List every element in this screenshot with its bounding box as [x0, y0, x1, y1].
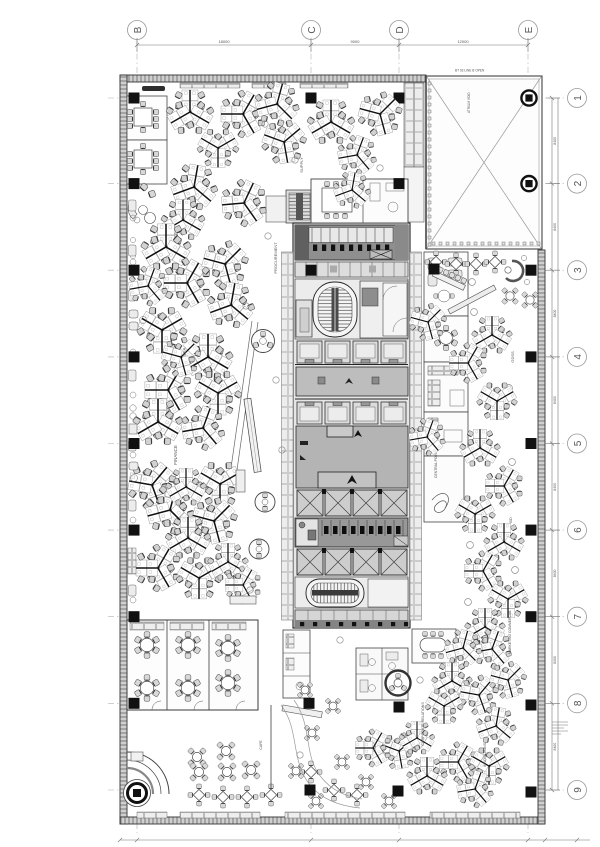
svg-text:8400: 8400: [553, 743, 557, 751]
svg-text:8400: 8400: [553, 396, 557, 404]
svg-text:8: 8: [573, 700, 584, 706]
svg-text:E: E: [524, 26, 535, 33]
svg-text:EXEC: EXEC: [372, 741, 377, 752]
svg-text:CORPORATE RELATIONS: CORPORATE RELATIONS: [421, 702, 425, 746]
svg-text:BD: BD: [508, 517, 513, 523]
svg-text:6: 6: [573, 527, 584, 533]
svg-text:GDSS: GDSS: [510, 351, 515, 363]
svg-text:1: 1: [573, 95, 584, 101]
svg-text:ATRIUM VOID: ATRIUM VOID: [467, 92, 471, 113]
svg-text:B: B: [133, 26, 144, 33]
svg-text:CENTRAL POINT: CENTRAL POINT: [434, 451, 438, 478]
svg-text:9000: 9000: [351, 39, 361, 44]
svg-text:4: 4: [573, 354, 584, 360]
svg-text:8400: 8400: [553, 483, 557, 491]
svg-text:8400: 8400: [553, 223, 557, 231]
svg-text:3: 3: [573, 267, 584, 273]
svg-text:C: C: [307, 26, 318, 33]
svg-text:PROCUREMENT: PROCUREMENT: [273, 242, 278, 274]
svg-text:8400: 8400: [553, 310, 557, 318]
svg-text:7: 7: [573, 613, 584, 619]
svg-text:INNOVATIONS: INNOVATIONS: [483, 742, 487, 767]
svg-text:D: D: [395, 26, 406, 33]
svg-text:CAFE: CAFE: [259, 740, 263, 750]
svg-text:SUPPLY: SUPPLY: [299, 157, 304, 173]
svg-text:8400: 8400: [553, 569, 557, 577]
svg-text:8400: 8400: [553, 137, 557, 145]
svg-text:18000: 18000: [218, 39, 230, 44]
svg-text:MARKETING COMMERCIAL: MARKETING COMMERCIAL: [508, 610, 512, 654]
svg-text:9: 9: [573, 787, 584, 793]
svg-text:BT 03 LINE B OPEN: BT 03 LINE B OPEN: [455, 69, 485, 73]
svg-text:SEA: SEA: [182, 347, 187, 356]
svg-text:FINANCE: FINANCE: [173, 445, 178, 465]
svg-text:8400: 8400: [553, 656, 557, 664]
svg-text:2: 2: [573, 180, 584, 186]
svg-text:12000: 12000: [457, 39, 469, 44]
svg-text:5: 5: [573, 440, 584, 446]
